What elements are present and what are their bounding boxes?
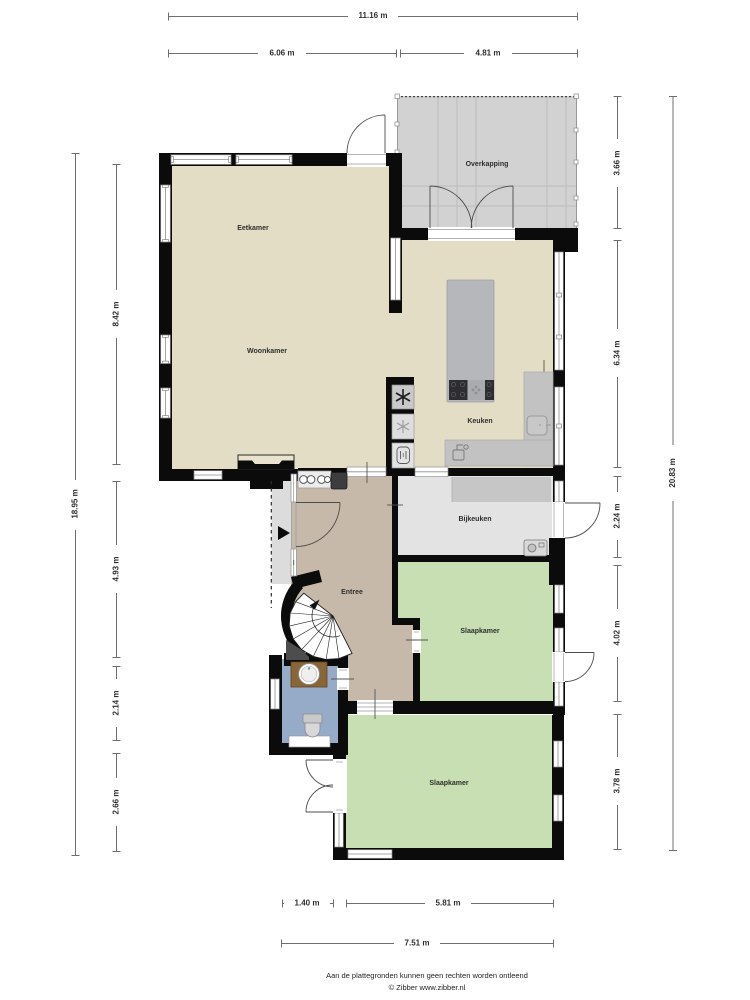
svg-text:Overkapping: Overkapping: [466, 161, 509, 168]
svg-text:2.14 m: 2.14 m: [112, 691, 121, 716]
svg-text:6.34 m: 6.34 m: [613, 341, 622, 366]
svg-text:3.78 m: 3.78 m: [613, 769, 622, 794]
svg-text:Aan de plattegronden kunnen ge: Aan de plattegronden kunnen geen rechten…: [326, 971, 528, 980]
svg-text:8.42 m: 8.42 m: [112, 302, 121, 327]
svg-text:Slaapkamer: Slaapkamer: [429, 780, 469, 787]
svg-text:Slaapkamer: Slaapkamer: [460, 628, 500, 635]
svg-text:4.81 m: 4.81 m: [476, 49, 501, 58]
svg-text:20.83 m: 20.83 m: [668, 458, 677, 487]
svg-text:3.66 m: 3.66 m: [613, 151, 622, 176]
svg-text:2.24 m: 2.24 m: [613, 504, 622, 529]
svg-text:Keuken: Keuken: [467, 418, 492, 425]
svg-text:Woonkamer: Woonkamer: [247, 348, 287, 355]
svg-text:11.16 m: 11.16 m: [359, 11, 388, 20]
svg-text:4.02 m: 4.02 m: [613, 621, 622, 646]
svg-text:2.66 m: 2.66 m: [112, 790, 121, 815]
svg-text:5.81 m: 5.81 m: [436, 899, 461, 908]
svg-text:18.95 m: 18.95 m: [71, 489, 80, 518]
svg-text:4.93 m: 4.93 m: [112, 557, 121, 582]
svg-text:© Zibber www.zibber.nl: © Zibber www.zibber.nl: [389, 983, 466, 992]
svg-text:6.06 m: 6.06 m: [270, 49, 295, 58]
svg-text:Eetkamer: Eetkamer: [237, 225, 269, 232]
svg-text:1.40 m: 1.40 m: [295, 899, 320, 908]
svg-text:Entree: Entree: [341, 589, 363, 596]
svg-text:Bijkeuken: Bijkeuken: [458, 516, 491, 523]
svg-text:7.51 m: 7.51 m: [405, 939, 430, 948]
